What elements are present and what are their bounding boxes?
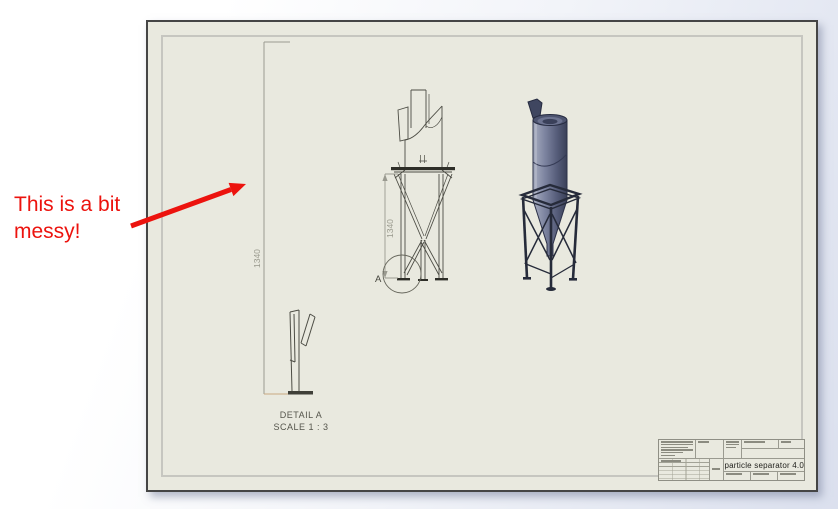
- title-block-cell: [742, 440, 779, 449]
- title-block-cell: [696, 440, 724, 459]
- front-view: [391, 90, 455, 281]
- title-block-cell: [710, 459, 725, 480]
- detail-title: DETAIL A: [280, 410, 323, 420]
- title-block: particle separator 4.0: [658, 439, 805, 481]
- title-block-cell: [724, 440, 742, 459]
- title-block-sheet-cell: [778, 472, 804, 480]
- slide-background: { "annotation": { "line1": "This is a bi…: [0, 0, 838, 509]
- detail-circle-label: A: [375, 274, 382, 285]
- front-dimension-label: 1340: [385, 219, 395, 238]
- annotation-text[interactable]: This is a bit messy!: [14, 191, 144, 245]
- drawing-title: particle separator 4.0: [724, 461, 804, 470]
- detail-circle: [383, 255, 421, 293]
- title-block-cell: [779, 440, 804, 449]
- annotation-line2: messy!: [14, 218, 144, 245]
- title-block-notes-cell: [659, 440, 696, 459]
- title-block-revision-table: [659, 459, 710, 480]
- isometric-view: [522, 99, 579, 291]
- title-block-scale-cell: [724, 472, 751, 480]
- drawing-views-canvas: 1340 DETAIL A SCALE 1 : 3: [148, 22, 820, 494]
- annotation-line1: This is a bit: [14, 191, 144, 218]
- detail-view: [288, 310, 315, 395]
- drawing-title-cell: particle separator 4.0: [724, 459, 804, 472]
- title-block-weight-cell: [751, 472, 778, 480]
- title-block-cell: [742, 449, 804, 459]
- detail-scale: SCALE 1 : 3: [273, 422, 328, 432]
- drawing-sheet[interactable]: 1340 DETAIL A SCALE 1 : 3: [146, 20, 818, 492]
- left-dimension-label: 1340: [252, 249, 262, 268]
- left-dimension: [264, 42, 290, 394]
